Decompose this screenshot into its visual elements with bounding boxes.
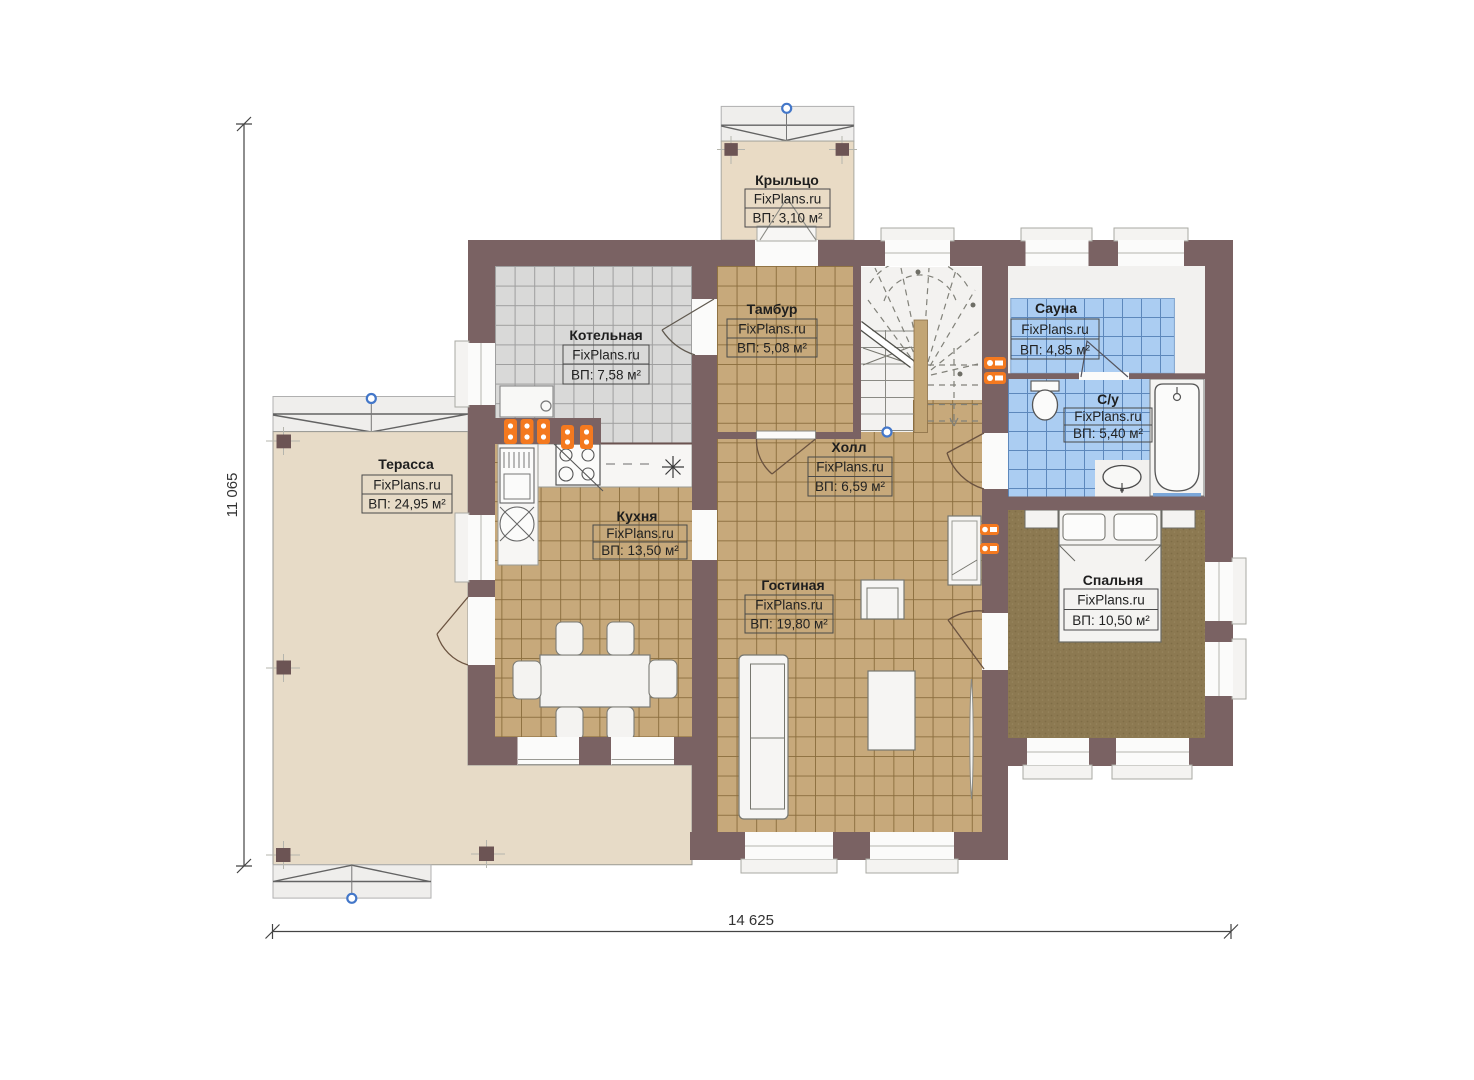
svg-text:14 625: 14 625	[728, 912, 774, 929]
svg-text:FixPlans.ru: FixPlans.ru	[754, 192, 822, 207]
svg-text:Крыльцо: Крыльцо	[755, 172, 819, 188]
svg-text:С/у: С/у	[1097, 391, 1119, 407]
svg-text:ВП: 7,58 м²: ВП: 7,58 м²	[571, 368, 642, 383]
svg-text:FixPlans.ru: FixPlans.ru	[572, 348, 640, 363]
svg-text:ВП: 10,50 м²: ВП: 10,50 м²	[1072, 613, 1150, 628]
svg-text:FixPlans.ru: FixPlans.ru	[1077, 593, 1145, 608]
svg-text:FixPlans.ru: FixPlans.ru	[1074, 409, 1142, 424]
svg-text:ВП: 13,50 м²: ВП: 13,50 м²	[601, 543, 679, 558]
svg-text:Спальня: Спальня	[1083, 572, 1143, 588]
svg-text:Сауна: Сауна	[1035, 300, 1077, 316]
svg-text:FixPlans.ru: FixPlans.ru	[373, 478, 441, 493]
svg-text:ВП: 5,40 м²: ВП: 5,40 м²	[1073, 426, 1144, 441]
svg-text:11 065: 11 065	[224, 473, 241, 518]
svg-text:ВП: 4,85 м²: ВП: 4,85 м²	[1020, 343, 1091, 358]
svg-text:ВП: 3,10 м²: ВП: 3,10 м²	[752, 211, 823, 226]
svg-text:ВП: 24,95 м²: ВП: 24,95 м²	[368, 497, 446, 512]
svg-text:Тамбур: Тамбур	[747, 301, 798, 317]
svg-text:ВП: 6,59 м²: ВП: 6,59 м²	[815, 479, 886, 494]
svg-text:FixPlans.ru: FixPlans.ru	[738, 322, 806, 337]
svg-text:FixPlans.ru: FixPlans.ru	[755, 598, 823, 613]
svg-text:Котельная: Котельная	[569, 327, 642, 343]
svg-text:FixPlans.ru: FixPlans.ru	[816, 460, 884, 475]
svg-text:Холл: Холл	[831, 439, 866, 455]
svg-text:ВП: 5,08 м²: ВП: 5,08 м²	[737, 341, 808, 356]
svg-text:FixPlans.ru: FixPlans.ru	[606, 526, 674, 541]
svg-text:Кухня: Кухня	[617, 508, 658, 524]
svg-text:Терасса: Терасса	[378, 456, 434, 472]
svg-text:FixPlans.ru: FixPlans.ru	[1021, 322, 1089, 337]
svg-text:Гостиная: Гостиная	[761, 577, 824, 593]
svg-text:ВП: 19,80 м²: ВП: 19,80 м²	[750, 617, 828, 632]
